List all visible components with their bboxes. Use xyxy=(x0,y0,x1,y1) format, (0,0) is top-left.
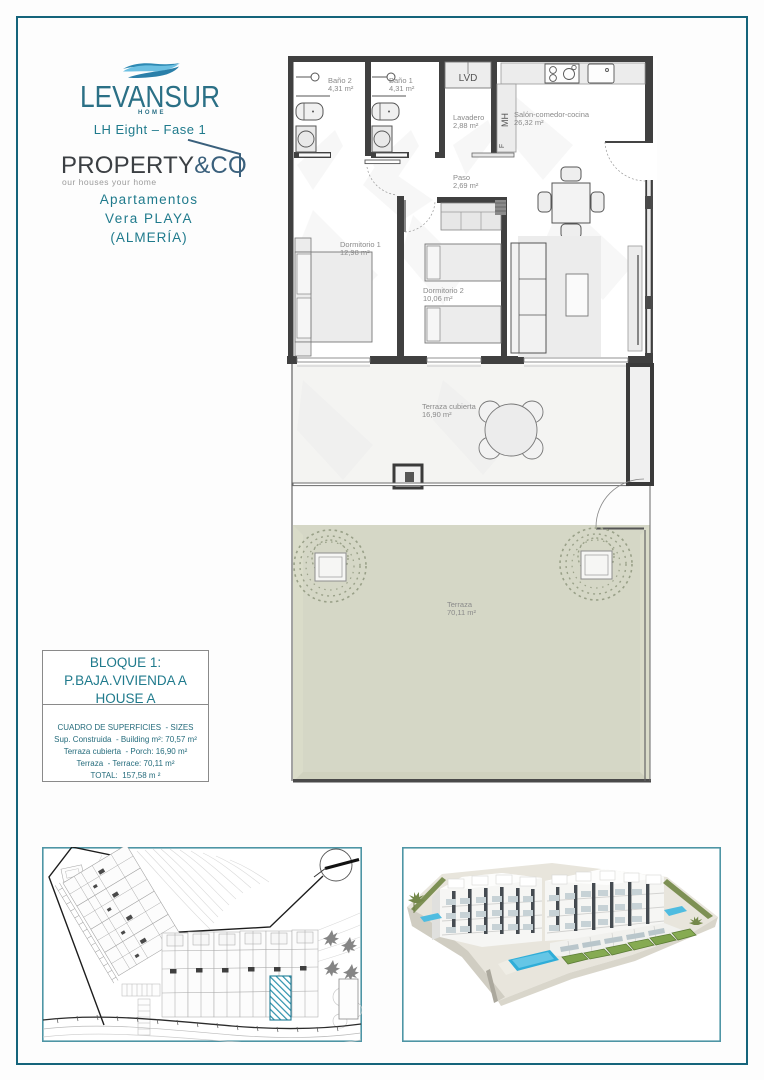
svg-text:12,98 m²: 12,98 m² xyxy=(340,248,370,257)
svg-text:4,31 m²: 4,31 m² xyxy=(328,84,354,93)
svg-text:MH: MH xyxy=(500,113,510,127)
svg-text:26,32 m²: 26,32 m² xyxy=(514,118,544,127)
svg-text:2,69 m²: 2,69 m² xyxy=(453,181,479,190)
svg-text:LVD: LVD xyxy=(459,73,478,84)
svg-text:2,88 m²: 2,88 m² xyxy=(453,121,479,130)
svg-text:10,06 m²: 10,06 m² xyxy=(423,294,453,303)
svg-text:F: F xyxy=(499,144,506,148)
svg-text:16,90 m²: 16,90 m² xyxy=(422,410,452,419)
svg-text:4,31 m²: 4,31 m² xyxy=(389,84,415,93)
svg-text:70,11 m²: 70,11 m² xyxy=(447,608,477,617)
